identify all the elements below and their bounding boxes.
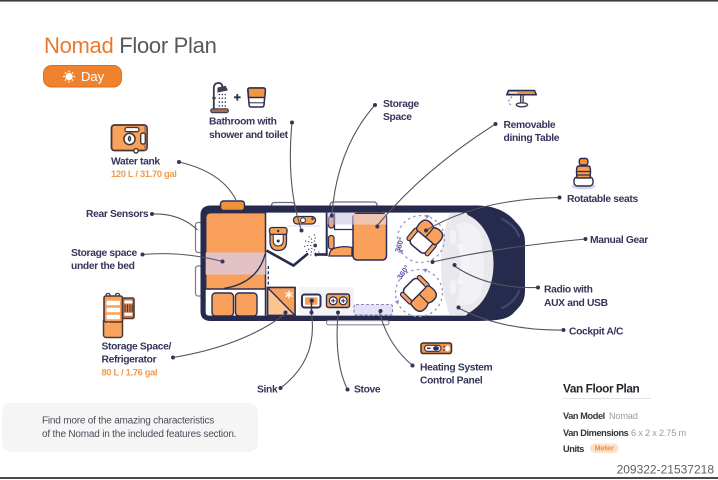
- svg-text:Van Dimensions: Van Dimensions: [563, 428, 629, 438]
- svg-text:Water tank: Water tank: [111, 157, 160, 168]
- svg-text:Bathroom with: Bathroom with: [209, 117, 277, 128]
- svg-text:209322-21537218: 209322-21537218: [617, 463, 715, 477]
- svg-text:under the bed: under the bed: [71, 261, 135, 272]
- svg-text:dining Table: dining Table: [504, 133, 560, 144]
- svg-text:Day: Day: [81, 69, 105, 84]
- svg-text:Sink: Sink: [257, 385, 278, 396]
- svg-text:Storage Space/: Storage Space/: [102, 342, 172, 353]
- svg-text:120 L / 31.70 gal: 120 L / 31.70 gal: [111, 169, 177, 179]
- svg-text:Nomad Floor Plan: Nomad Floor Plan: [44, 33, 217, 58]
- svg-text:Heating System: Heating System: [420, 363, 493, 374]
- svg-text:Control Panel: Control Panel: [420, 376, 483, 387]
- svg-text:Stove: Stove: [354, 385, 381, 396]
- svg-text:of the Nomad in the included f: of the Nomad in the included features se…: [42, 429, 236, 440]
- svg-text:6 x 2 x 2.75 m: 6 x 2 x 2.75 m: [631, 428, 686, 438]
- svg-text:Cockpit A/C: Cockpit A/C: [569, 327, 624, 338]
- svg-text:Storage space: Storage space: [71, 248, 137, 259]
- svg-text:Rotatable seats: Rotatable seats: [567, 194, 638, 205]
- svg-text:Find more of the amazing chara: Find more of the amazing characteristics: [42, 416, 214, 427]
- svg-text:Removable: Removable: [504, 120, 556, 131]
- svg-text:Nomad: Nomad: [609, 411, 638, 421]
- svg-text:Radio with: Radio with: [544, 285, 593, 296]
- svg-text:AUX and USB: AUX and USB: [544, 298, 608, 309]
- svg-text:Manual Gear: Manual Gear: [590, 235, 648, 246]
- svg-text:Refrigerator: Refrigerator: [102, 355, 157, 366]
- svg-text:Van Floor Plan: Van Floor Plan: [563, 382, 640, 396]
- svg-text:shower and toilet: shower and toilet: [209, 130, 289, 141]
- svg-text:Van Model: Van Model: [563, 411, 605, 421]
- svg-text:Units: Units: [563, 444, 584, 454]
- svg-text:Meter: Meter: [595, 444, 614, 453]
- svg-text:Storage: Storage: [383, 99, 420, 110]
- svg-text:Space: Space: [383, 112, 412, 123]
- svg-text:Rear Sensors: Rear Sensors: [86, 209, 149, 220]
- svg-text:80 L / 1.76 gal: 80 L / 1.76 gal: [102, 368, 158, 378]
